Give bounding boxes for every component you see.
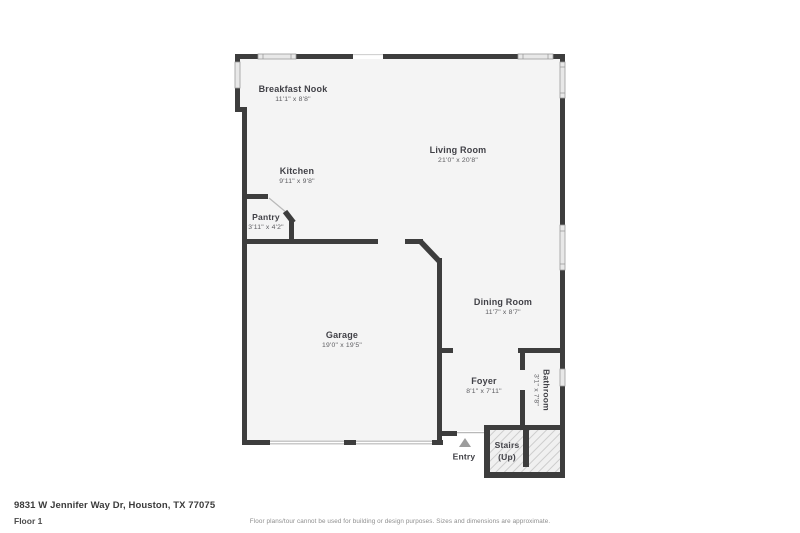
- window-top-right: [518, 54, 553, 59]
- wall-stairs-internal: [523, 428, 529, 467]
- window-left: [235, 62, 240, 88]
- entry-arrow-icon: [459, 438, 471, 447]
- floor-plan-drawing: [0, 0, 800, 533]
- wall-garage-bottom-mid: [344, 440, 356, 445]
- wall-garage-top-a: [242, 239, 378, 244]
- wall-bathroom-left-a: [520, 353, 525, 370]
- property-address: 9831 W Jennifer Way Dr, Houston, TX 7707…: [14, 500, 215, 511]
- wall-left-lower: [242, 107, 247, 445]
- window-right-upper: [560, 62, 565, 98]
- window-top-gap: [353, 54, 383, 59]
- wall-garage-bottom-right: [432, 440, 443, 445]
- wall-stairs-left: [484, 425, 490, 478]
- floor-interior: [237, 56, 563, 476]
- window-top-left: [258, 54, 296, 59]
- wall-garage-bottom-left: [242, 440, 270, 445]
- window-bathroom: [560, 369, 565, 386]
- window-right-mid: [560, 225, 565, 270]
- wall-foyer-bottom: [437, 431, 457, 436]
- wall-dining-foyer-stub: [437, 348, 453, 353]
- wall-bathroom-left-b: [520, 390, 525, 430]
- wall-stairs-bottom: [484, 472, 565, 478]
- floor-plan-page: { "floor_plan": { "rooms": [ {"id": "bre…: [0, 0, 800, 533]
- wall-kitchen-bottom: [242, 194, 268, 199]
- wall-bathroom-top: [518, 348, 565, 353]
- disclaimer-text: Floor plans/tour cannot be used for buil…: [0, 518, 800, 525]
